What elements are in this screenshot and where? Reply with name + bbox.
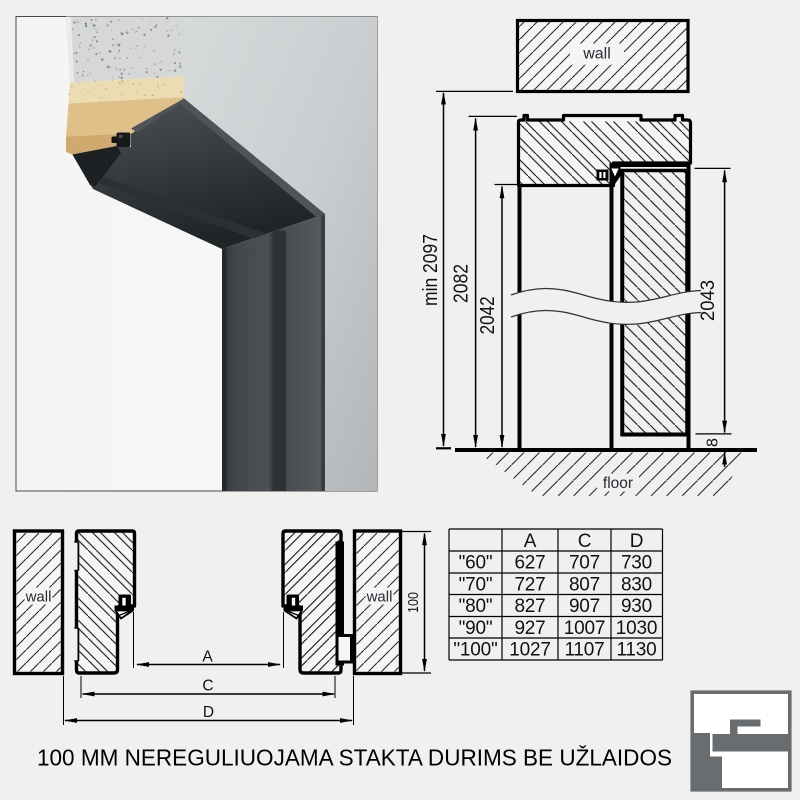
svg-text:727: 727: [514, 575, 545, 596]
svg-text:1130: 1130: [616, 640, 656, 661]
svg-text:927: 927: [514, 618, 545, 639]
svg-text:wall: wall: [582, 46, 611, 63]
svg-text:2042: 2042: [477, 296, 499, 334]
svg-text:"70": "70": [459, 575, 493, 596]
svg-text:D: D: [630, 531, 644, 552]
svg-text:A: A: [524, 531, 537, 552]
svg-text:wall: wall: [366, 589, 393, 606]
svg-text:D: D: [203, 704, 214, 721]
svg-text:min 2097: min 2097: [420, 234, 442, 306]
svg-text:1107: 1107: [564, 640, 604, 661]
svg-text:2043: 2043: [698, 280, 719, 321]
svg-text:707: 707: [569, 553, 600, 574]
svg-text:2082: 2082: [451, 264, 473, 303]
svg-text:wall: wall: [25, 589, 52, 606]
svg-text:"80": "80": [459, 596, 493, 617]
svg-text:807: 807: [569, 575, 600, 596]
svg-text:8: 8: [705, 438, 722, 447]
svg-text:1027: 1027: [509, 640, 550, 661]
svg-text:827: 827: [514, 596, 545, 617]
svg-text:C: C: [578, 531, 592, 552]
svg-text:907: 907: [569, 596, 600, 617]
svg-text:"90": "90": [459, 618, 493, 639]
svg-text:730: 730: [621, 553, 652, 574]
svg-text:627: 627: [514, 553, 545, 574]
svg-text:1007: 1007: [564, 618, 605, 639]
svg-text:"100": "100": [453, 640, 497, 661]
svg-text:floor: floor: [603, 475, 633, 492]
svg-text:A: A: [202, 649, 213, 666]
svg-text:830: 830: [621, 575, 652, 596]
svg-text:100: 100: [405, 592, 422, 613]
svg-text:930: 930: [621, 596, 652, 617]
svg-text:100 MM NEREGULIUOJAMA STAKTA D: 100 MM NEREGULIUOJAMA STAKTA DURIMS BE U…: [37, 745, 672, 771]
svg-text:1030: 1030: [616, 618, 657, 639]
svg-text:C: C: [202, 678, 213, 695]
svg-text:"60": "60": [459, 553, 493, 574]
